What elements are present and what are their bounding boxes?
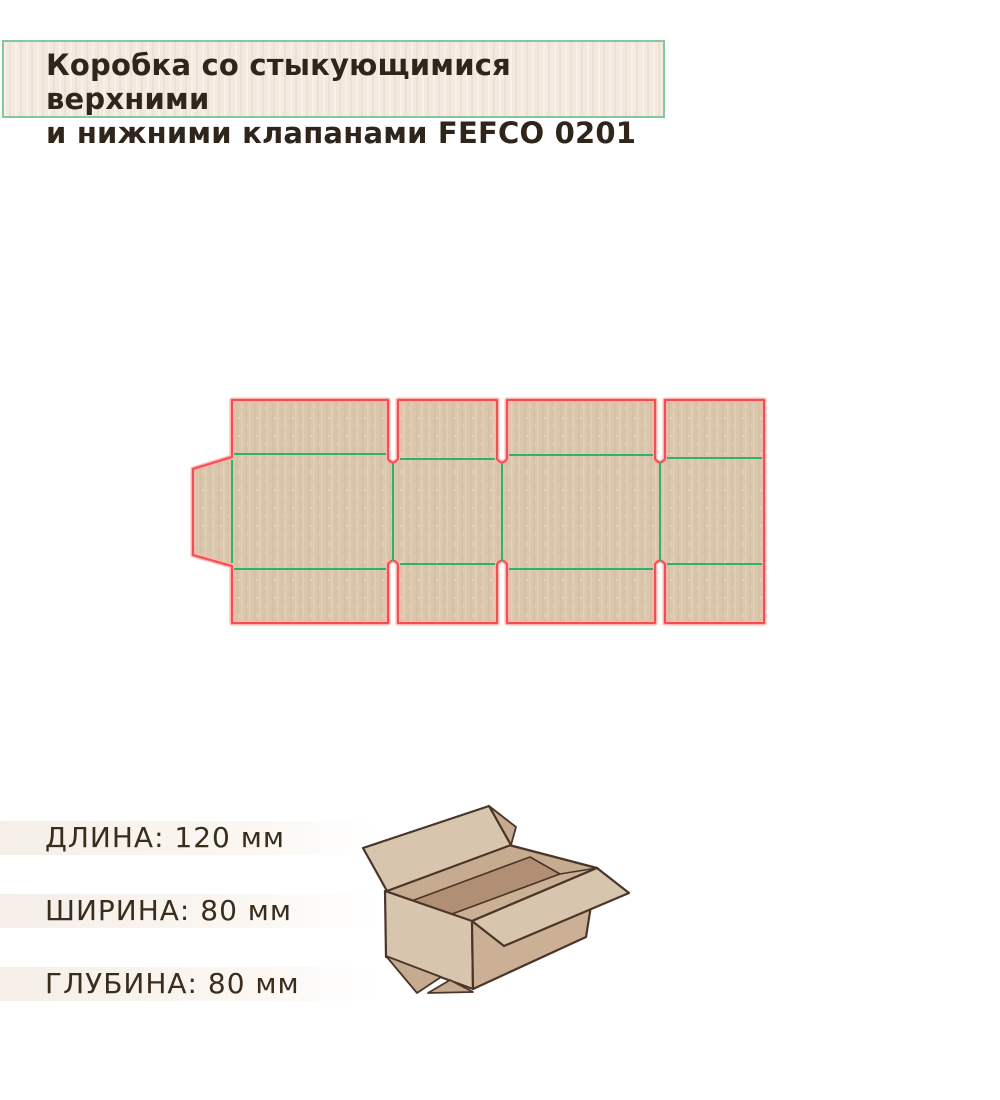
- cut-lines: [193, 400, 764, 623]
- dimension-depth: ГЛУБИНА: 80 мм: [0, 967, 392, 1001]
- product-title: Коробка со стыкующимися верхними и нижни…: [2, 40, 665, 118]
- product-title-line1: Коробка со стыкующимися верхними: [46, 48, 663, 116]
- dimension-length-text: ДЛИНА: 120 мм: [45, 821, 285, 854]
- dimension-length: ДЛИНА: 120 мм: [0, 821, 392, 855]
- dimension-width: ШИРИНА: 80 мм: [0, 894, 392, 928]
- product-title-line2: и нижними клапанами FEFCO 0201: [46, 116, 663, 150]
- open-box-illustration: [350, 795, 640, 1010]
- dimension-depth-text: ГЛУБИНА: 80 мм: [45, 967, 300, 1000]
- dieline-blank-shape: [193, 400, 764, 623]
- fold-lines: [232, 454, 762, 569]
- dimension-width-text: ШИРИНА: 80 мм: [45, 894, 292, 927]
